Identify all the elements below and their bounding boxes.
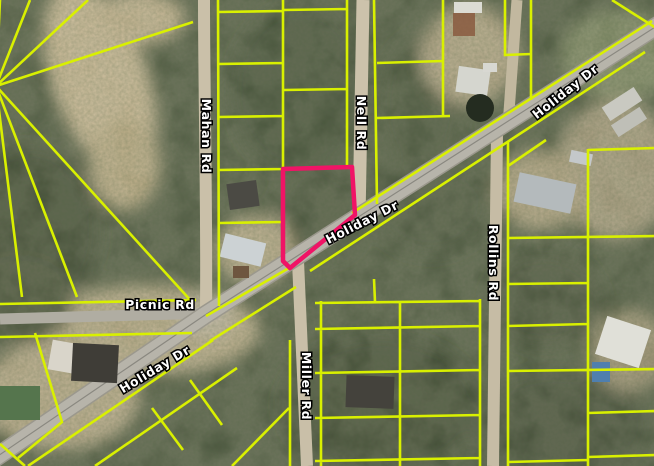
aerial-map: Holiday Dr Holiday Dr Holiday Dr Mahan R… [0, 0, 654, 466]
building-roof [454, 2, 482, 13]
road-label-miller-rd: Miller Rd [299, 352, 314, 420]
house-roof [71, 343, 119, 383]
picnic-road-surface [0, 313, 213, 319]
pond [466, 94, 494, 122]
shed [233, 266, 249, 278]
road-label-rollins-rd: Rollins Rd [486, 225, 501, 301]
blue-tarp [592, 362, 610, 382]
road-label-picnic-rd: Picnic Rd [125, 297, 195, 312]
house-roof [226, 180, 259, 210]
house-roof [345, 375, 394, 409]
map-canvas[interactable]: Holiday Dr Holiday Dr Holiday Dr Mahan R… [0, 0, 654, 466]
green-roof-building [0, 386, 40, 420]
vehicle [483, 63, 497, 72]
cleared-ground-patch [453, 13, 475, 36]
road-label-mahan-rd: Mahan Rd [199, 99, 214, 174]
road-label-nell-rd: Nell Rd [354, 96, 369, 151]
